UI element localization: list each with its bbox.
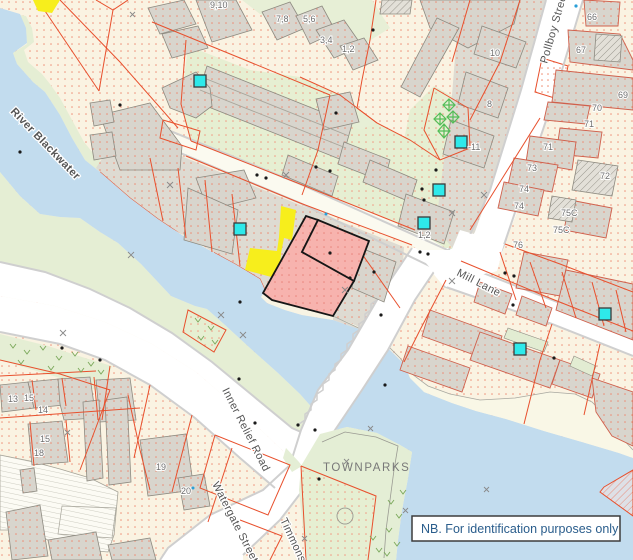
- svg-text:15: 15: [24, 393, 34, 403]
- svg-text:TOWNPARKS: TOWNPARKS: [323, 462, 410, 474]
- svg-text:72: 72: [600, 171, 610, 181]
- svg-text:13: 13: [8, 394, 18, 404]
- svg-text:3,4: 3,4: [320, 35, 333, 45]
- svg-text:71: 71: [584, 119, 594, 129]
- svg-text:20: 20: [181, 486, 191, 496]
- svg-text:74: 74: [514, 201, 524, 211]
- svg-text:8: 8: [487, 99, 492, 109]
- svg-text:76: 76: [513, 240, 523, 250]
- svg-text:70: 70: [592, 103, 602, 113]
- svg-text:15: 15: [40, 434, 50, 444]
- svg-text:67: 67: [576, 45, 586, 55]
- svg-text:-11: -11: [468, 142, 480, 152]
- svg-text:73: 73: [527, 163, 537, 173]
- svg-text:69: 69: [618, 90, 628, 100]
- svg-text:75C: 75C: [561, 208, 578, 218]
- svg-text:NB. For identification purpose: NB. For identification purposes only: [421, 522, 619, 536]
- svg-text:1,2: 1,2: [418, 230, 431, 240]
- svg-text:10: 10: [490, 48, 500, 58]
- svg-text:7,8: 7,8: [276, 14, 289, 24]
- svg-text:9,10: 9,10: [210, 0, 228, 10]
- svg-text:14: 14: [38, 405, 48, 415]
- svg-text:19: 19: [156, 462, 166, 472]
- svg-text:18: 18: [34, 448, 44, 458]
- svg-text:5,6: 5,6: [303, 14, 316, 24]
- svg-text:71: 71: [543, 142, 553, 152]
- svg-text:1,2: 1,2: [342, 44, 355, 54]
- svg-text:66: 66: [587, 12, 597, 22]
- svg-text:75C: 75C: [553, 225, 570, 235]
- svg-text:74: 74: [519, 184, 529, 194]
